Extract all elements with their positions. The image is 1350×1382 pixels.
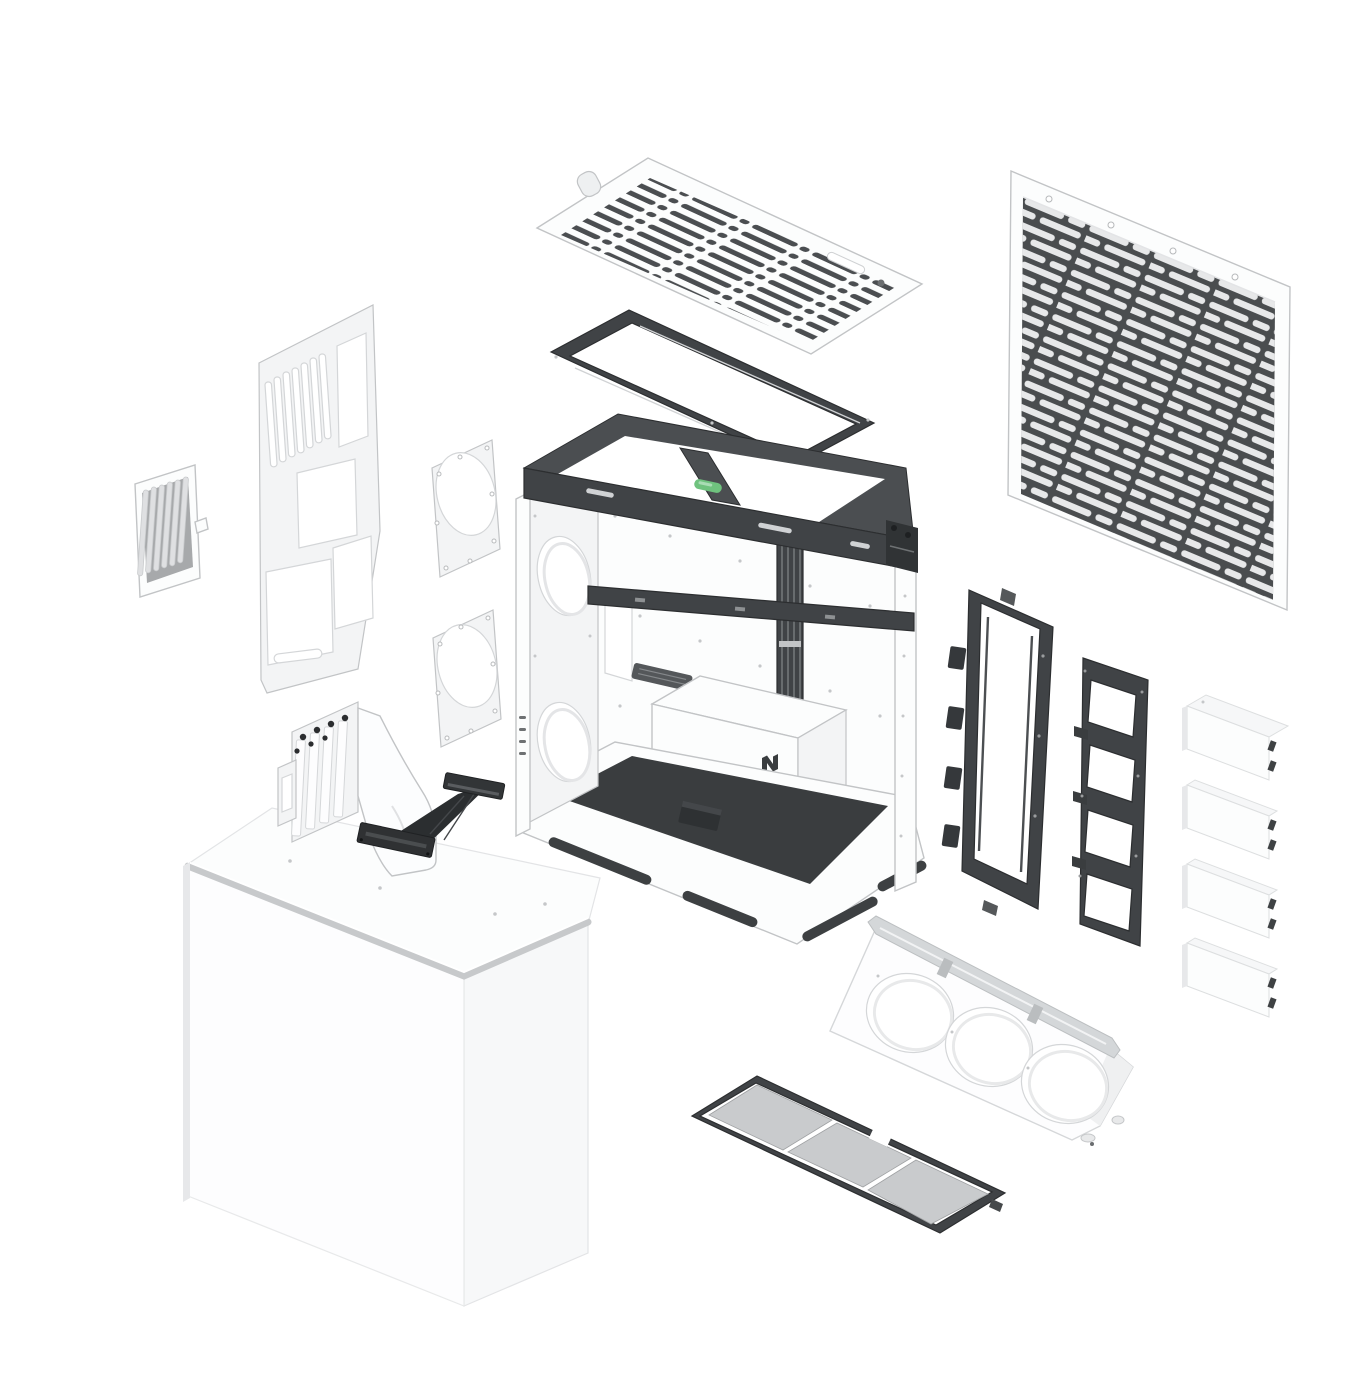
panel-left-edge xyxy=(183,862,190,1202)
drive-mount-ladder xyxy=(1072,658,1148,946)
rear-cutout-top xyxy=(337,333,368,447)
wraparound-panel xyxy=(183,808,600,1306)
fan-adapter-bottom xyxy=(429,610,506,747)
rear-vent-cover xyxy=(135,465,208,597)
front-right-pillar xyxy=(895,549,916,891)
bottom-fan-bracket xyxy=(830,916,1133,1146)
exploded-view-figure: Exploded view diagram of a white dual-ch… xyxy=(40,16,1350,1366)
drive-bay-cover xyxy=(1182,695,1288,780)
drive-bay-cover xyxy=(1182,938,1277,1017)
drive-bay-covers xyxy=(1182,695,1288,1017)
thumbscrew xyxy=(878,280,885,287)
panel-right-face xyxy=(464,924,588,1306)
fan-radiator-tray xyxy=(942,588,1053,916)
tray-rails xyxy=(979,617,1032,872)
bottom-dust-filter xyxy=(692,1076,1005,1233)
front-left-pillar xyxy=(516,492,530,836)
main-chassis xyxy=(516,414,928,944)
drive-bay-cover xyxy=(1182,859,1277,938)
tray-cutout xyxy=(605,596,632,681)
rear-panel xyxy=(259,305,380,693)
drive-bay-cover xyxy=(1182,780,1277,859)
mesh-slots xyxy=(1021,197,1275,600)
side-mesh-panel xyxy=(1008,171,1290,610)
side-bracket xyxy=(278,760,296,826)
top-exhaust-panel xyxy=(537,158,922,354)
cage-end-block xyxy=(886,520,918,573)
psu-cutout xyxy=(266,559,333,665)
rear-cutout-right xyxy=(333,536,373,629)
tray-hinges xyxy=(942,646,967,848)
rear-cutout-mid xyxy=(297,459,357,548)
fan-adapter-top xyxy=(428,440,505,577)
exploded-view-svg xyxy=(40,16,1350,1366)
front-fan-wall xyxy=(526,458,598,824)
